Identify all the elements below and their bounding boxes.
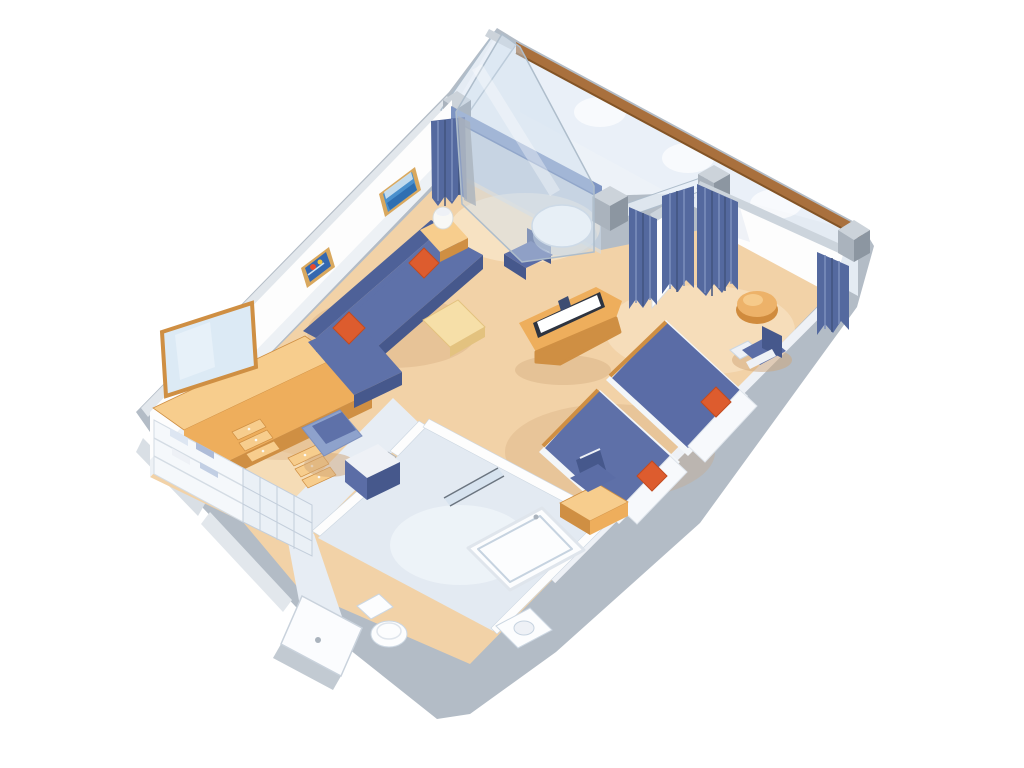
sink-basin: [514, 621, 534, 635]
suite-floorplan-illustration: [0, 0, 1024, 768]
round-ottoman-highlight: [743, 294, 763, 306]
curtain-post-c: [817, 252, 849, 335]
floorplan-stage: [0, 0, 1024, 768]
bathtub-faucet: [534, 515, 539, 520]
toilet-bowl: [371, 621, 407, 647]
table-lamp-shade: [436, 208, 450, 216]
drawer-knob-2: [255, 439, 258, 442]
drawer-knob-3: [262, 450, 265, 453]
drawer-knob-4: [304, 454, 307, 457]
curtain-post-d-right: [697, 184, 738, 296]
curtain-post-d-left: [662, 186, 694, 294]
drawer-knob-6: [318, 476, 321, 479]
entry-door-handle: [315, 637, 321, 643]
drawer-knob-1: [248, 428, 251, 431]
